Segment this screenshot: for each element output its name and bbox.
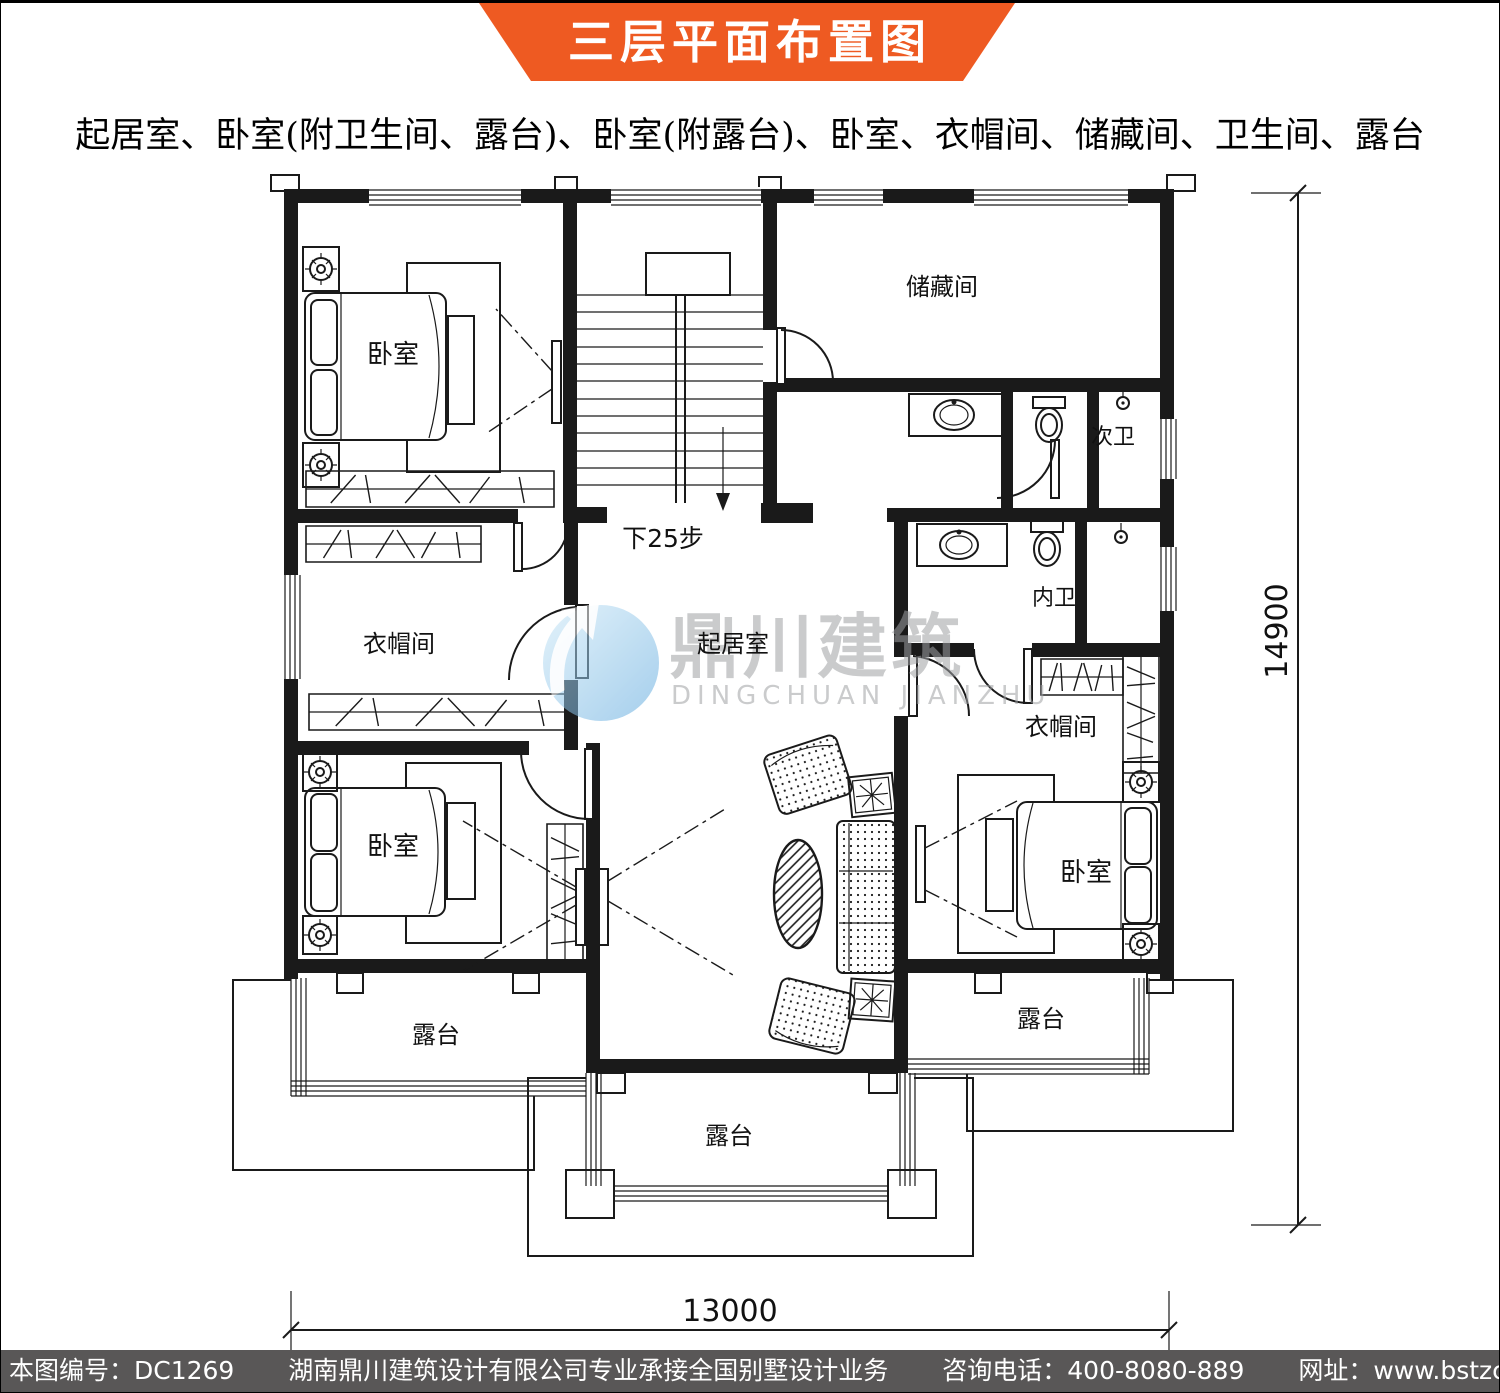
bedroom-top-left-furniture — [303, 247, 561, 487]
room-label-living: 起居室 — [697, 630, 769, 658]
room-label-terrace-right: 露台 — [1017, 1005, 1065, 1033]
page-title: 三层平面布置图 — [1, 3, 1499, 81]
room-label-bedroom-tl: 卧室 — [367, 340, 419, 370]
room-label-bedroom-bl: 卧室 — [367, 832, 419, 862]
room-label-terrace-center: 露台 — [705, 1122, 753, 1150]
room-label-bath-master: 内卫 — [1032, 586, 1076, 611]
footer-bar: 本图编号：DC1269 湖南鼎川建筑设计有限公司专业承接全国别墅设计业务 咨询电… — [1, 1350, 1499, 1392]
room-label-storage: 储藏间 — [906, 273, 978, 301]
stairs — [577, 253, 763, 511]
dimension-width-label: 13000 — [682, 1294, 777, 1329]
living-room-furniture — [599, 733, 896, 1055]
room-label-cloak-right: 衣帽间 — [1025, 713, 1097, 741]
footer-drawing-number: 本图编号：DC1269 — [9, 1356, 234, 1385]
room-label-terrace-left: 露台 — [412, 1021, 460, 1049]
room-label-bath-secondary: 次卫 — [1091, 425, 1135, 450]
floor-plan: 鼎川建筑 DINGCHUAN JIANZHU 卧室 储藏间 次卫 内卫 衣帽间 … — [1, 3, 1500, 1393]
footer-website: 网址：www.bstzcs.com — [1298, 1356, 1500, 1385]
bedroom-bottom-left-furniture — [303, 753, 585, 971]
page: 鼎川建筑 DINGCHUAN JIANZHU 卧室 储藏间 次卫 内卫 衣帽间 … — [0, 0, 1500, 1393]
bedroom-bottom-right-furniture — [916, 762, 1159, 964]
watermark-en: DINGCHUAN JIANZHU — [671, 681, 1051, 711]
footer-phone: 咨询电话：400-8080-889 — [942, 1356, 1244, 1385]
terraces — [233, 978, 1233, 1256]
room-label-bedroom-br: 卧室 — [1060, 858, 1112, 888]
stairs-note-label: 下25步 — [622, 524, 704, 553]
footer-company: 湖南鼎川建筑设计有限公司专业承接全国别墅设计业务 — [288, 1356, 888, 1385]
banner: 三层平面布置图 — [1, 3, 1499, 81]
room-list-subtitle: 起居室、卧室(附卫生间、露台)、卧室(附露台)、卧室、衣帽间、储藏间、卫生间、露… — [1, 107, 1499, 158]
dimension-height-label: 14900 — [1260, 583, 1295, 678]
room-label-cloak-left: 衣帽间 — [363, 630, 435, 658]
